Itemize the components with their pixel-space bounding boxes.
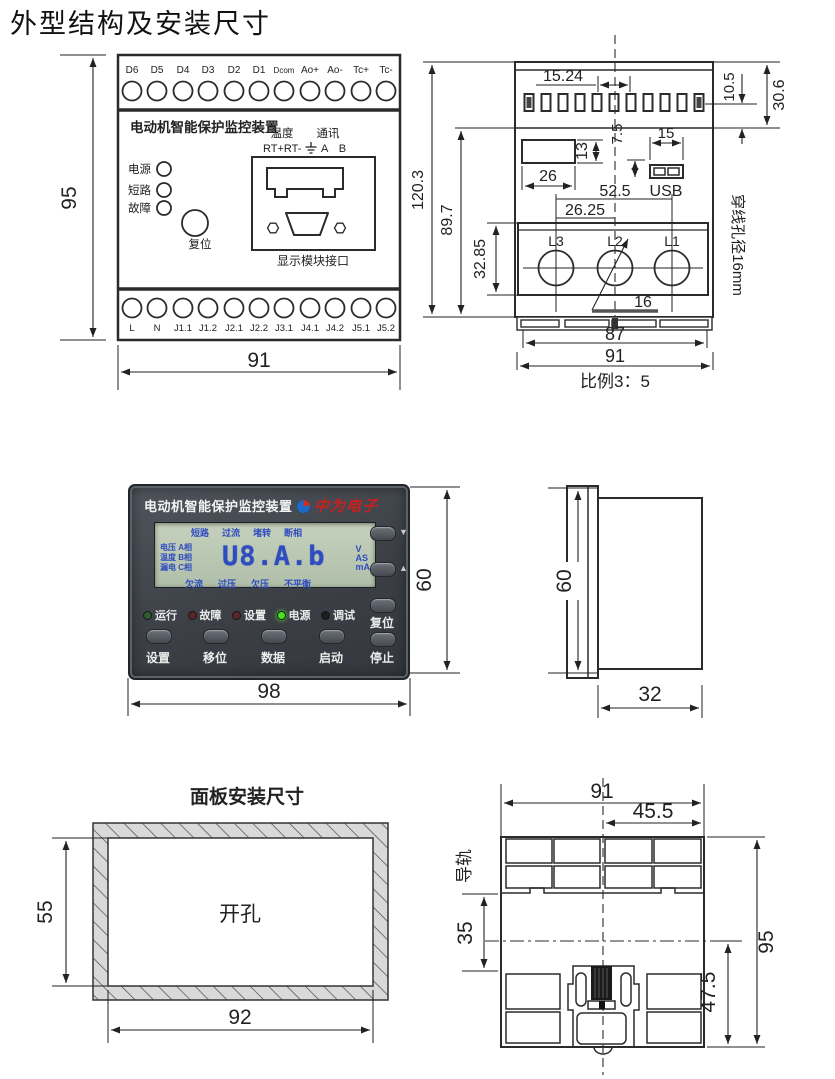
brand-logo-icon bbox=[297, 500, 310, 513]
dim-label: 87 bbox=[605, 324, 625, 344]
panel-led-row: 运行 故障 设置 电源 调试 bbox=[143, 607, 355, 623]
manual-page: 外型结构及安装尺寸 95 D6 D5 bbox=[0, 0, 835, 1079]
dim-label: 10.5 bbox=[721, 72, 738, 101]
dim-label: 16 bbox=[634, 294, 652, 311]
comm-label: 通讯 bbox=[317, 127, 340, 140]
stop-button[interactable] bbox=[370, 632, 396, 647]
dim-label: 60 bbox=[553, 569, 576, 592]
display-window: 26 13 bbox=[522, 140, 603, 190]
led-dot bbox=[277, 611, 286, 620]
panel-title-text: 电动机智能保护监控装置 bbox=[144, 499, 293, 514]
data-button-label: 数据 bbox=[253, 649, 293, 666]
lcd-flag: 短路 bbox=[191, 526, 209, 539]
screw-left bbox=[268, 223, 279, 233]
clip-spring[interactable] bbox=[591, 966, 612, 1000]
lcd-status-top: 短路 过流 堵转 断相 bbox=[155, 523, 375, 539]
reset-button[interactable] bbox=[370, 598, 396, 613]
dim-front-height: 95 bbox=[58, 55, 106, 340]
terminal-label: Ao+ bbox=[301, 65, 319, 76]
led-power: 电源 bbox=[277, 607, 311, 623]
screw-right bbox=[335, 223, 346, 233]
led-dot bbox=[321, 611, 330, 620]
rail-view-drawing: 35 导轨 91 45.5 bbox=[430, 770, 835, 1079]
dim-label: 92 bbox=[228, 1006, 251, 1029]
led-dot bbox=[143, 611, 152, 620]
terminal-label: J5.1 bbox=[352, 323, 370, 334]
bottom-terminal-holes bbox=[123, 299, 396, 318]
status-led-group: 电源 短路 故障 bbox=[128, 162, 171, 215]
lcd-status-bottom: 欠流 过压 欠压 不平衡 bbox=[155, 577, 375, 590]
led-label: 故障 bbox=[128, 201, 151, 215]
hole-label: 开孔 bbox=[219, 903, 261, 926]
rail-label: 导轨 bbox=[455, 849, 474, 883]
terminal-label: Dcom bbox=[274, 66, 295, 75]
dim-ct-height: 32.85 bbox=[472, 223, 518, 295]
body-outline bbox=[598, 498, 702, 669]
shift-button[interactable] bbox=[203, 629, 229, 644]
dsub-connector-shape bbox=[286, 213, 328, 235]
lcd-display: 短路 过流 堵转 断相 电压 A相 温度 B相 漏电 C相 U8.A.b V A… bbox=[154, 522, 376, 588]
dim-label: 91 bbox=[605, 346, 625, 366]
dim-label: 32.85 bbox=[472, 239, 489, 279]
stop-button-label: 停止 bbox=[362, 649, 402, 666]
temp-label: 温度 bbox=[271, 126, 294, 140]
dim-label: 32 bbox=[638, 683, 661, 706]
usb-label: USB bbox=[650, 183, 683, 200]
dim-label: 52.5 bbox=[599, 183, 630, 200]
top-terminal-holes bbox=[123, 82, 396, 101]
lcd-flag: 欠压 bbox=[251, 577, 269, 590]
dim-body-height: 89.7 bbox=[439, 128, 515, 314]
set-button-label: 设置 bbox=[138, 649, 178, 666]
reset-button-label: 复位 bbox=[362, 614, 402, 631]
set-button[interactable] bbox=[146, 629, 172, 644]
display-port-area: 温度 通讯 RT+RT- A B 显示模块接口 bbox=[252, 126, 375, 268]
led-fault: 故障 bbox=[188, 607, 222, 623]
cutout-drawing: 面板安装尺寸 开孔 55 92 bbox=[30, 785, 430, 1075]
down-arrow-icon: ▼ bbox=[399, 527, 408, 537]
dim-label: 30.6 bbox=[771, 79, 788, 110]
dim-label: 89.7 bbox=[439, 204, 456, 235]
lcd-flag: 堵转 bbox=[253, 526, 271, 539]
dim-label: 45.5 bbox=[633, 800, 674, 823]
led-label: 电源 bbox=[128, 162, 151, 176]
display-port-label: 显示模块接口 bbox=[277, 253, 349, 268]
dim-label: 35 bbox=[454, 921, 477, 944]
dim-label: 26 bbox=[539, 168, 557, 185]
reset-label: 复位 bbox=[189, 237, 212, 251]
temp-pins-label: RT+RT- bbox=[263, 143, 302, 155]
lcd-units: V AS mA bbox=[355, 545, 370, 572]
clip-latch[interactable] bbox=[577, 1013, 626, 1044]
reset-button-drawing: 复位 bbox=[182, 210, 212, 251]
terminal-label: J1.1 bbox=[174, 323, 192, 334]
lcd-unit: mA bbox=[355, 563, 370, 572]
terminal-label: L bbox=[129, 323, 134, 334]
top-terminal-row: D6 D5 D4 D3 D2 D1 Dcom Ao+ Ao- Tc+ Tc- bbox=[123, 65, 396, 101]
dim-front-width: 91 bbox=[118, 345, 400, 390]
dim-slot-offset: 10.5 bbox=[705, 72, 780, 144]
dim-label: 15 bbox=[658, 125, 675, 142]
terminal-label: J2.1 bbox=[225, 323, 243, 334]
up-button[interactable] bbox=[370, 562, 396, 577]
dim-side-height: 60 bbox=[548, 488, 598, 673]
lcd-row-label: 温度 B相 bbox=[160, 553, 192, 563]
up-arrow-icon: ▲ bbox=[399, 563, 408, 573]
comm-pins-label: A B bbox=[321, 143, 350, 155]
lcd-main-row: 电压 A相 温度 B相 漏电 C相 U8.A.b V AS mA bbox=[155, 539, 375, 577]
led-run: 运行 bbox=[143, 607, 177, 623]
terminal-label: D4 bbox=[177, 65, 190, 76]
hole-label: L2 bbox=[607, 233, 623, 249]
dim-outer-width: 91 bbox=[517, 346, 713, 370]
dim-label: 91 bbox=[247, 349, 270, 372]
dim-label: 91 bbox=[590, 780, 613, 803]
terminal-label: D1 bbox=[253, 65, 266, 76]
scale-label: 比例3：5 bbox=[580, 372, 650, 391]
page-title: 外型结构及安装尺寸 bbox=[10, 2, 271, 41]
terminal-label: J1.2 bbox=[199, 323, 217, 334]
terminal-label: Tc+ bbox=[353, 65, 369, 76]
terminal-label: D2 bbox=[228, 65, 241, 76]
lcd-flag: 欠流 bbox=[185, 577, 203, 590]
led-label: 短路 bbox=[128, 183, 151, 197]
dim-panel-height: 60 bbox=[410, 487, 460, 673]
dim-label: 15.24 bbox=[543, 68, 583, 85]
lcd-row-label: 电压 A相 bbox=[160, 543, 192, 553]
terminal-label: J4.1 bbox=[301, 323, 319, 334]
dim-label: 26.25 bbox=[565, 202, 605, 219]
terminal-label: D3 bbox=[202, 65, 215, 76]
dim-label: 55 bbox=[34, 900, 57, 923]
terminal-label: Tc- bbox=[379, 65, 392, 76]
terminal-label: J2.2 bbox=[250, 323, 268, 334]
terminal-label: J4.2 bbox=[326, 323, 344, 334]
module-slot-shape bbox=[267, 168, 343, 197]
brand-name: 中为电子 bbox=[313, 495, 379, 516]
terminal-label: D5 bbox=[151, 65, 164, 76]
terminal-label: J5.2 bbox=[377, 323, 395, 334]
side-view-drawing: 60 32 bbox=[540, 470, 835, 720]
panel-title: 电动机智能保护监控装置 中为电子 bbox=[144, 495, 404, 516]
dim-label: 120.3 bbox=[410, 170, 427, 210]
dim-label: 95 bbox=[58, 186, 81, 209]
dim-panel-width: 98 bbox=[128, 678, 410, 716]
led-setting: 设置 bbox=[232, 607, 266, 623]
shift-button-label: 移位 bbox=[195, 649, 235, 666]
data-button[interactable] bbox=[261, 629, 287, 644]
dim-label: 95 bbox=[755, 930, 778, 953]
led-debug: 调试 bbox=[321, 607, 355, 623]
terminal-label: J3.1 bbox=[275, 323, 293, 334]
dim-total-height: 120.3 bbox=[410, 62, 515, 317]
front-view-drawing: 95 D6 D5 D4 D3 D2 D1 Dcom Ao+ Ao- Tc+ Tc… bbox=[30, 42, 420, 400]
dim-label: 13 bbox=[574, 142, 591, 160]
lcd-flag: 断相 bbox=[284, 526, 302, 539]
dim-label: 7.5 bbox=[609, 124, 626, 145]
wire-hole-note: 穿线孔径16mm bbox=[729, 194, 746, 296]
lcd-flag: 过流 bbox=[222, 526, 240, 539]
led-dot bbox=[232, 611, 241, 620]
terminal-label: Ao- bbox=[327, 65, 343, 76]
dim-label: 60 bbox=[413, 568, 436, 591]
device-outline bbox=[118, 55, 400, 340]
down-button[interactable] bbox=[370, 526, 396, 541]
lcd-digits: U8.A.b bbox=[192, 541, 355, 572]
led-dot bbox=[188, 611, 197, 620]
dim-label: 98 bbox=[257, 680, 280, 703]
display-panel-photo: 电动机智能保护监控装置 中为电子 短路 过流 堵转 断相 电压 A相 温度 B相… bbox=[128, 484, 410, 680]
lcd-flag: 不平衡 bbox=[284, 577, 311, 590]
dim-rail-offset: 35 bbox=[454, 894, 498, 971]
dim-rear-height: 95 bbox=[707, 837, 778, 1047]
terminal-slot-row bbox=[525, 94, 704, 111]
ground-icon bbox=[306, 142, 317, 153]
lcd-row-labels: 电压 A相 温度 B相 漏电 C相 bbox=[160, 543, 192, 573]
start-button-label: 启动 bbox=[311, 649, 351, 666]
device-name-label: 电动机智能保护监控装置 bbox=[130, 119, 279, 135]
dim-side-depth: 32 bbox=[598, 683, 702, 718]
cutout-title: 面板安装尺寸 bbox=[190, 785, 304, 808]
dim-label: 47.5 bbox=[697, 972, 720, 1013]
dim-slot-pitch: 15.24 bbox=[536, 68, 630, 92]
terminal-label: N bbox=[154, 323, 161, 334]
lcd-row-label: 漏电 C相 bbox=[160, 563, 192, 573]
start-button[interactable] bbox=[319, 629, 345, 644]
top-view-drawing: 120.3 89.7 32.85 bbox=[415, 30, 835, 410]
bottom-terminal-row: L N J1.1 J1.2 J2.1 J2.2 J3.1 J4.1 J4.2 J… bbox=[123, 299, 396, 335]
lcd-flag: 过压 bbox=[218, 577, 236, 590]
terminal-label: D6 bbox=[126, 65, 139, 76]
